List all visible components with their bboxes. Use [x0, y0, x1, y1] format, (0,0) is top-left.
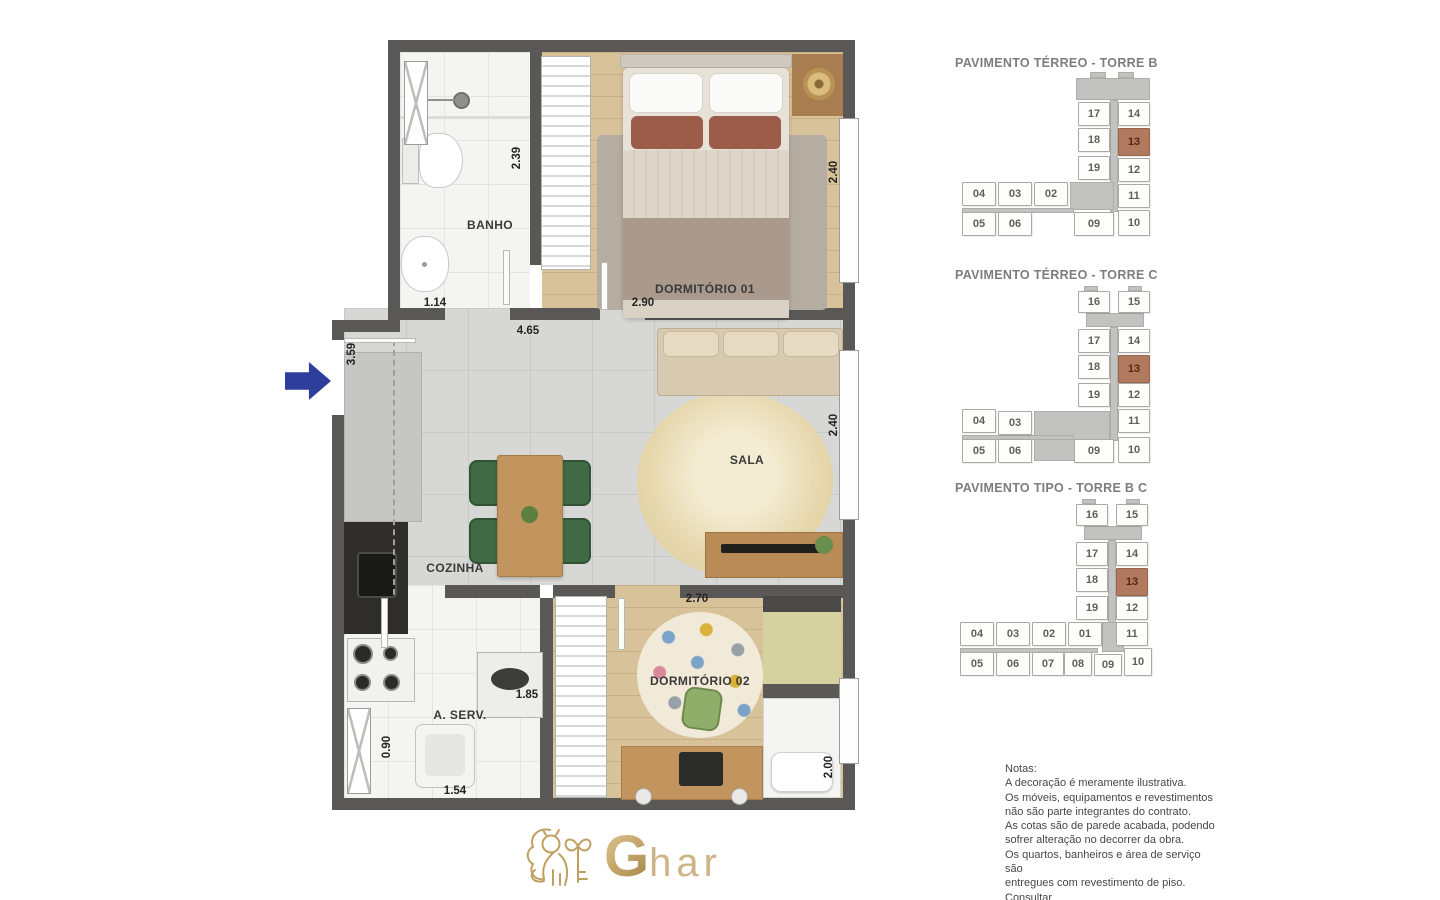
dimension-label: 1.85	[516, 689, 538, 701]
diagram-plate-tipo-torre-bc: 16151714181319121104030201050607080910	[958, 504, 1173, 689]
unit-cell-19: 19	[1078, 156, 1110, 180]
wall	[445, 585, 540, 598]
room-label: SALA	[730, 453, 764, 467]
floor-plan: BANHODORMITÓRIO 01COZINHASALAA. SERV.DOR…	[285, 40, 863, 814]
unit-cell-13-highlighted: 13	[1118, 128, 1150, 156]
accent-pillow-right	[709, 116, 781, 149]
corridor	[1110, 327, 1118, 441]
wall	[400, 308, 445, 320]
wall	[332, 415, 344, 798]
dorm1-door-leaf	[601, 262, 608, 310]
diagram-title-terreo-torre-c: PAVIMENTO TÉRREO - TORRE C	[955, 268, 1158, 282]
unit-cell-06: 06	[998, 212, 1032, 236]
desk-chair	[680, 686, 723, 733]
unit-cell-09: 09	[1094, 654, 1122, 676]
dimension-label: 2.40	[828, 161, 840, 183]
note-line: Os quartos, banheiros e área de serviço …	[1005, 848, 1220, 877]
unit-cell-04: 04	[962, 409, 996, 433]
unit-cell-14: 14	[1118, 102, 1150, 126]
unit-cell-14: 14	[1116, 542, 1148, 566]
desk-stool-left	[635, 788, 652, 805]
burner-2	[383, 646, 398, 661]
diagram-title-tipo-torre-bc: PAVIMENTO TIPO - TORRE B C	[955, 481, 1147, 495]
shower-head-icon	[453, 92, 470, 109]
dimension-label: 2.90	[632, 297, 654, 309]
dimension-label: 2.40	[828, 414, 840, 436]
washer-lid	[491, 668, 529, 690]
wall	[388, 52, 400, 320]
single-bed-shelf	[763, 596, 841, 612]
unit-cell-02: 02	[1034, 182, 1068, 206]
note-line: sofrer alteração no decorrer da obra.	[1005, 833, 1220, 847]
note-line: As cotas são de parede acabada, podendo	[1005, 819, 1220, 833]
dimension-label: 1.14	[424, 297, 446, 309]
dimension-label: 0.90	[381, 736, 393, 758]
unit-cell-08: 08	[1064, 652, 1092, 676]
bed-headboard	[620, 54, 792, 68]
dimension-label: 3.59	[346, 343, 358, 365]
banho-window-icon	[404, 61, 428, 145]
table-plant-icon	[521, 506, 538, 523]
burner-1	[353, 644, 373, 664]
unit-cell-11: 11	[1118, 184, 1150, 208]
aserv-window-icon	[347, 708, 371, 794]
unit-cell-02: 02	[1032, 622, 1066, 646]
desk-stool-right	[731, 788, 748, 805]
room-label: DORMITÓRIO 01	[655, 282, 755, 296]
unit-cell-03: 03	[996, 622, 1030, 646]
note-line: Os móveis, equipamentos e revestimentos	[1005, 791, 1220, 805]
accent-pillow-left	[631, 116, 703, 149]
brand-letters-har: har	[649, 843, 722, 883]
dorm2-wardrobe	[555, 596, 607, 798]
wall	[332, 798, 855, 810]
unit-cell-17: 17	[1078, 329, 1110, 353]
brand-logo: Ghar	[520, 820, 722, 894]
kitchen-sink	[357, 552, 397, 598]
unit-cell-05: 05	[960, 652, 994, 676]
dorm2-door-leaf	[618, 598, 625, 650]
unit-cell-05: 05	[962, 212, 996, 236]
single-bed-blanket	[763, 612, 841, 684]
room-label: A. SERV.	[433, 708, 486, 722]
burner-3	[354, 674, 371, 691]
diagram-plate-terreo-torre-b: 1714181319121104030205060910	[960, 78, 1175, 263]
dimension-label: 1.54	[444, 785, 466, 797]
unit-cell-14: 14	[1118, 329, 1150, 353]
kitchen-counter	[344, 352, 422, 522]
table-lamp-icon	[803, 68, 835, 100]
unit-cell-17: 17	[1078, 102, 1110, 126]
unit-cell-07: 07	[1032, 652, 1064, 676]
room-label: BANHO	[467, 218, 513, 232]
unit-cell-10: 10	[1118, 210, 1150, 236]
lion-key-icon	[520, 822, 602, 892]
single-bed-band	[763, 684, 841, 698]
room-label: DORMITÓRIO 02	[650, 674, 750, 688]
unit-cell-15: 15	[1116, 504, 1148, 526]
aserv-door-leaf	[381, 598, 388, 648]
brand-wordmark: Ghar	[604, 828, 722, 886]
unit-cell-03: 03	[998, 182, 1032, 206]
unit-cell-09: 09	[1074, 212, 1114, 236]
sala-window-icon	[839, 350, 859, 520]
brand-letter-g: G	[604, 828, 649, 886]
unit-cell-11: 11	[1118, 409, 1150, 433]
unit-cell-04: 04	[962, 182, 996, 206]
unit-cell-12: 12	[1118, 383, 1150, 407]
note-line: entregues com revestimento de piso. Cons…	[1005, 876, 1220, 900]
dorm1-window-icon	[839, 118, 859, 283]
shower-arm	[425, 99, 455, 101]
sink-drain	[422, 262, 427, 267]
unit-cell-06: 06	[998, 439, 1032, 463]
unit-cell-05: 05	[962, 439, 996, 463]
unit-cell-03: 03	[998, 411, 1032, 435]
corridor	[1076, 78, 1150, 100]
dorm2-window-icon	[839, 678, 859, 764]
brochure-canvas: BANHODORMITÓRIO 01COZINHASALAA. SERV.DOR…	[0, 0, 1440, 900]
unit-cell-15: 15	[1118, 291, 1150, 313]
wall	[510, 308, 600, 320]
dimension-label: 4.65	[517, 325, 539, 337]
banho-door-leaf	[503, 250, 510, 305]
unit-cell-04: 04	[960, 622, 994, 646]
note-line: A decoração é meramente ilustrativa.	[1005, 776, 1220, 790]
tv	[721, 544, 827, 553]
unit-cell-06: 06	[996, 652, 1030, 676]
sofa-cushion-2	[723, 331, 779, 357]
dorm1-wardrobe	[541, 56, 591, 270]
unit-cell-18: 18	[1076, 568, 1108, 592]
unit-cell-12: 12	[1118, 158, 1150, 182]
unit-cell-09: 09	[1074, 439, 1114, 463]
unit-cell-10: 10	[1124, 648, 1152, 676]
projection-line	[393, 340, 395, 595]
pillow-left	[629, 73, 703, 113]
tank-basin	[425, 734, 465, 776]
unit-cell-19: 19	[1078, 383, 1110, 407]
unit-cell-17: 17	[1076, 542, 1108, 566]
corridor	[1084, 526, 1142, 540]
corridor	[1086, 313, 1144, 327]
unit-cell-01: 01	[1068, 622, 1102, 646]
unit-cell-10: 10	[1118, 437, 1150, 463]
unit-cell-19: 19	[1076, 596, 1108, 620]
pillow-right	[709, 73, 783, 113]
note-line: não são parte integrantes do contrato.	[1005, 805, 1220, 819]
room-label: COZINHA	[426, 561, 483, 575]
sofa-cushion-3	[783, 331, 839, 357]
dimension-label: 2.70	[686, 593, 708, 605]
burner-4	[383, 674, 400, 691]
entrance-arrow-icon	[285, 362, 331, 400]
notes: Notas:A decoração é meramente ilustrativ…	[1005, 762, 1220, 900]
diagram-plate-terreo-torre-c: 161517141813191211040305060910	[960, 291, 1175, 476]
unit-cell-18: 18	[1078, 128, 1110, 152]
dimension-label: 2.39	[511, 147, 523, 169]
wall	[388, 40, 855, 52]
dimension-label: 2.00	[823, 756, 835, 778]
bed-sheet-band	[623, 150, 789, 218]
unit-cell-16: 16	[1078, 291, 1110, 313]
unit-cell-16: 16	[1076, 504, 1108, 526]
unit-cell-18: 18	[1078, 355, 1110, 379]
corridor	[1070, 182, 1114, 210]
unit-cell-13-highlighted: 13	[1116, 568, 1148, 596]
note-line: Notas:	[1005, 762, 1220, 776]
unit-cell-13-highlighted: 13	[1118, 355, 1150, 383]
diagram-title-terreo-torre-b: PAVIMENTO TÉRREO - TORRE B	[955, 56, 1158, 70]
tv-plant-icon	[815, 536, 833, 554]
wall	[332, 320, 400, 332]
laptop	[679, 752, 723, 786]
unit-cell-12: 12	[1116, 596, 1148, 620]
sofa-cushion-1	[663, 331, 719, 357]
unit-cell-11: 11	[1116, 622, 1148, 646]
